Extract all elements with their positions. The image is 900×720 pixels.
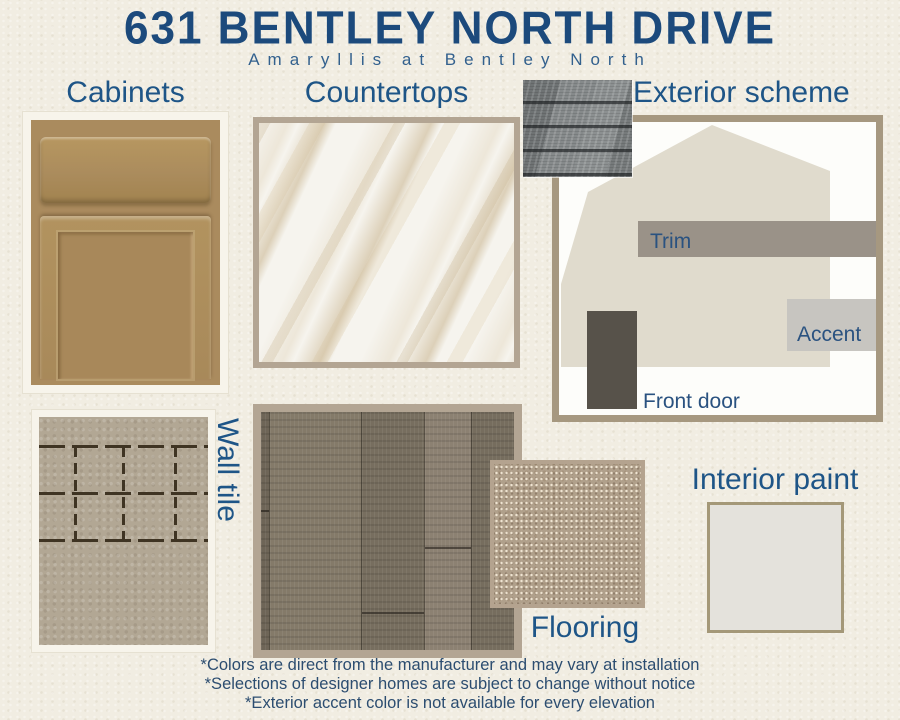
cabinet-door-front (40, 216, 211, 379)
accent-color-swatch: Accent (787, 299, 876, 351)
front-door-swatch (587, 311, 637, 409)
exterior-scheme-label: Exterior scheme (633, 76, 850, 110)
interior-paint-label: Interior paint (650, 463, 900, 497)
selection-board: 631 BENTLEY NORTH DRIVE Amaryllis at Ben… (0, 0, 900, 720)
floor-plank (261, 412, 269, 650)
accent-label: Accent (797, 323, 861, 347)
flooring-label: Flooring (460, 611, 710, 645)
roof-shingle-swatch (523, 80, 632, 177)
grout-line (74, 445, 77, 542)
floor-plank (269, 412, 361, 650)
grout-line (174, 445, 177, 542)
plank-joint (261, 510, 269, 512)
trim-color-bar: Trim (638, 221, 876, 257)
wall-tile-swatch (32, 410, 215, 652)
page-subtitle: Amaryllis at Bentley North (0, 50, 900, 70)
cabinet-door-sample (31, 120, 220, 385)
wall-tile-sample (39, 417, 208, 645)
disclaimer-line: *Exterior accent color is not available … (0, 694, 900, 713)
plank-joint (425, 547, 471, 549)
disclaimer-line: *Colors are direct from the manufacturer… (0, 656, 900, 675)
cabinets-label: Cabinets (23, 76, 228, 110)
front-door-label: Front door (643, 390, 740, 414)
disclaimer-text: *Colors are direct from the manufacturer… (0, 656, 900, 712)
floor-plank (361, 412, 424, 650)
disclaimer-line: *Selections of designer homes are subjec… (0, 675, 900, 694)
carpet-swatch (490, 460, 645, 608)
cabinet-door-panel (58, 232, 193, 379)
cabinet-swatch (23, 112, 228, 393)
interior-paint-swatch (707, 502, 844, 633)
plank-joint (362, 612, 424, 614)
countertop-swatch (253, 117, 520, 368)
wall-tile-label: Wall tile (210, 418, 244, 568)
trim-label: Trim (650, 230, 691, 254)
countertops-label: Countertops (253, 76, 520, 110)
cabinet-drawer-front (40, 137, 211, 203)
grout-line (122, 445, 125, 542)
page-title: 631 BENTLEY NORTH DRIVE (9, 1, 891, 55)
